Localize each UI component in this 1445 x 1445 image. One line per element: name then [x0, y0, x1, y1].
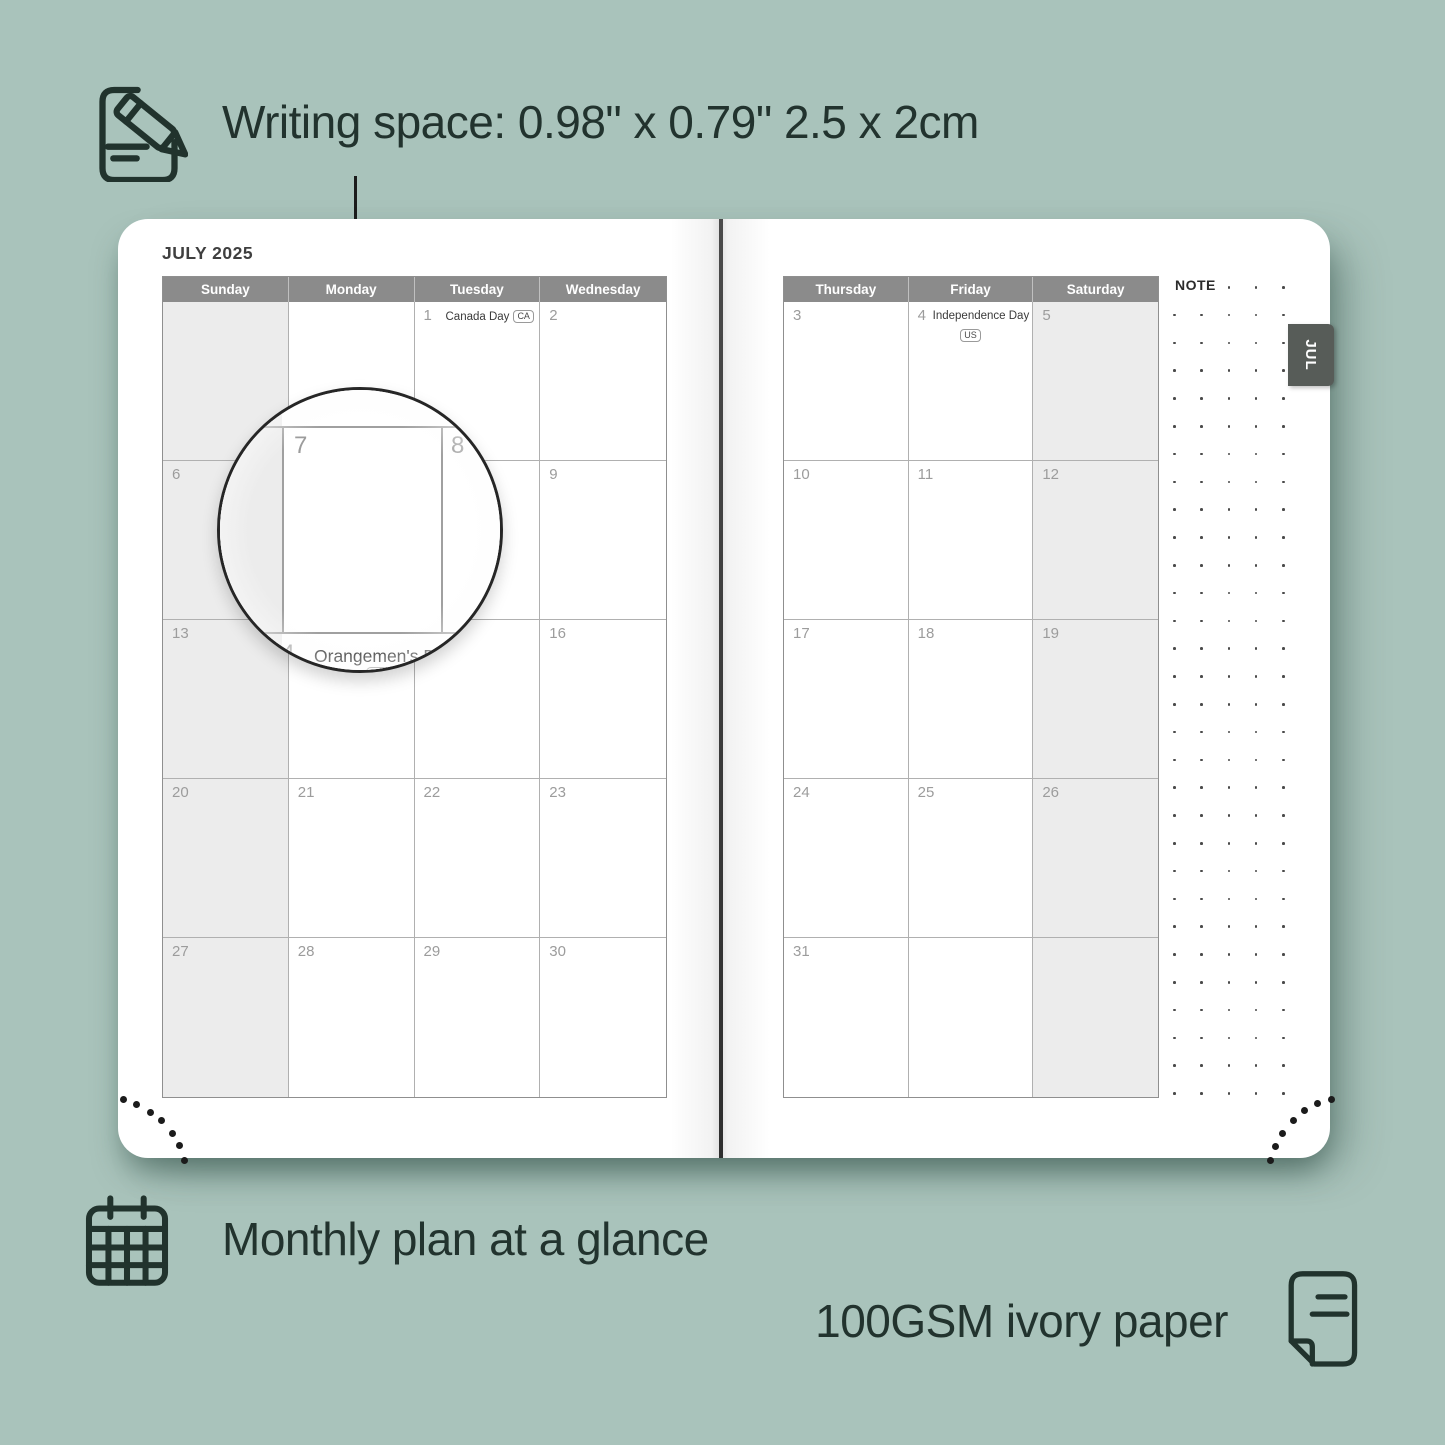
note-dot [1255, 564, 1258, 567]
note-dot [1200, 425, 1203, 428]
note-dot [1200, 786, 1203, 789]
month-title: JULY 2025 [162, 243, 253, 264]
note-dot [1200, 647, 1203, 650]
note-dot [1200, 981, 1203, 984]
calendar-cell: 22 [415, 779, 541, 938]
note-dot [1228, 731, 1231, 734]
note-dot [1255, 786, 1258, 789]
note-dot [1255, 842, 1258, 845]
note-dot [1228, 314, 1231, 317]
note-dot [1173, 536, 1176, 539]
monthly-plan-label: Monthly plan at a glance [222, 1212, 709, 1266]
magnified-weekend-column [220, 390, 282, 670]
corner-dot [169, 1130, 176, 1137]
note-dot [1173, 870, 1176, 873]
day-header: Monday [289, 277, 415, 302]
note-dot [1228, 842, 1231, 845]
note-label: NOTE [1175, 277, 1216, 293]
note-dot [1255, 425, 1258, 428]
note-dot [1228, 1064, 1231, 1067]
calendar-cell: 4Independence DayUS [909, 302, 1034, 461]
day-header: Tuesday [415, 277, 541, 302]
calendar-cell: 30 [540, 938, 666, 1097]
magnified-day-7: 7 [294, 432, 307, 460]
day-number: 16 [549, 625, 566, 642]
note-dot [1282, 286, 1285, 289]
note-dot [1282, 453, 1285, 456]
corner-dot [181, 1157, 188, 1164]
day-number: 21 [298, 784, 315, 801]
note-dot [1255, 369, 1258, 372]
note-dot [1282, 1092, 1285, 1095]
note-dot [1200, 814, 1203, 817]
note-dot [1282, 481, 1285, 484]
note-dot [1255, 481, 1258, 484]
note-dot [1255, 703, 1258, 706]
note-dot [1173, 564, 1176, 567]
day-number: 1 [424, 307, 432, 324]
day-number: 30 [549, 943, 566, 960]
note-dot [1228, 759, 1231, 762]
note-dot [1228, 481, 1231, 484]
day-number: 28 [298, 943, 315, 960]
note-dot [1255, 981, 1258, 984]
day-number: 2 [549, 307, 557, 324]
note-dot [1282, 536, 1285, 539]
note-dot [1282, 703, 1285, 706]
day-number: 4 [918, 307, 926, 324]
note-dot [1228, 786, 1231, 789]
note-dot [1200, 620, 1203, 623]
corner-dot [120, 1096, 127, 1103]
note-dot [1282, 508, 1285, 511]
note-dot [1228, 369, 1231, 372]
note-dot [1173, 703, 1176, 706]
note-dot [1255, 536, 1258, 539]
corner-dot [1267, 1157, 1274, 1164]
note-dot [1282, 925, 1285, 928]
calendar-cell: 31 [784, 938, 909, 1097]
note-dot [1282, 314, 1285, 317]
calendar-cell: 11 [909, 461, 1034, 620]
note-dot [1228, 870, 1231, 873]
corner-dot [1301, 1107, 1308, 1114]
paper-label: 100GSM ivory paper [815, 1294, 1228, 1348]
calendar-cell: 20 [163, 779, 289, 938]
note-dot [1200, 898, 1203, 901]
note-dot [1255, 1064, 1258, 1067]
day-number: 17 [793, 625, 810, 642]
note-dot [1228, 1037, 1231, 1040]
note-dot [1228, 397, 1231, 400]
note-dot [1200, 1009, 1203, 1012]
corner-dot [176, 1142, 183, 1149]
note-dot [1200, 481, 1203, 484]
note-dot [1228, 647, 1231, 650]
note-dot [1173, 592, 1176, 595]
note-dot [1228, 953, 1231, 956]
note-dot [1173, 898, 1176, 901]
note-dot [1173, 397, 1176, 400]
day-number: 12 [1042, 466, 1059, 483]
note-dot [1282, 953, 1285, 956]
note-dot [1228, 425, 1231, 428]
magnified-writing-space: 7 8 14 Orangemen's Day NL [220, 390, 500, 670]
note-dot [1255, 314, 1258, 317]
note-dot [1200, 870, 1203, 873]
month-tab-label: JUL [1280, 332, 1342, 378]
calendar-cell: 24 [784, 779, 909, 938]
note-dot [1228, 564, 1231, 567]
note-dot [1255, 453, 1258, 456]
day-header: Saturday [1033, 277, 1158, 302]
day-header: Thursday [784, 277, 909, 302]
day-number: 26 [1042, 784, 1059, 801]
note-dot [1173, 814, 1176, 817]
note-dot [1228, 453, 1231, 456]
corner-dot [1314, 1100, 1321, 1107]
note-dot [1173, 759, 1176, 762]
calendar-cell: 19 [1033, 620, 1158, 779]
note-dot [1255, 620, 1258, 623]
calendar-cell: 16 [540, 620, 666, 779]
planner-spread: JULY 2025 SundayMondayTuesdayWednesday1C… [118, 219, 1330, 1158]
note-dot [1173, 981, 1176, 984]
note-dot [1173, 481, 1176, 484]
note-dot [1173, 369, 1176, 372]
note-dot [1228, 620, 1231, 623]
note-dot [1282, 592, 1285, 595]
note-dot [1228, 342, 1231, 345]
note-dot [1282, 870, 1285, 873]
note-dot [1255, 898, 1258, 901]
note-dot [1173, 647, 1176, 650]
note-dot [1228, 286, 1231, 289]
note-dot [1228, 675, 1231, 678]
note-dot [1228, 981, 1231, 984]
calendar-cell [1033, 938, 1158, 1097]
note-dot [1173, 842, 1176, 845]
corner-dot [1290, 1117, 1297, 1124]
calendar-cell: 17 [784, 620, 909, 779]
calendar-cell: 2 [540, 302, 666, 461]
note-dot [1255, 647, 1258, 650]
note-dot [1255, 1037, 1258, 1040]
writing-space-label: Writing space: 0.98" x 0.79" 2.5 x 2cm [222, 95, 979, 149]
note-dot [1282, 786, 1285, 789]
day-number: 5 [1042, 307, 1050, 324]
note-dot [1200, 453, 1203, 456]
note-dot [1282, 397, 1285, 400]
calendar-grid-icon [76, 1190, 178, 1292]
magnified-day-8: 8 [451, 432, 464, 460]
note-dot [1255, 925, 1258, 928]
note-dot [1173, 1037, 1176, 1040]
note-dot [1282, 759, 1285, 762]
day-number: 10 [793, 466, 810, 483]
calendar-cell: 29 [415, 938, 541, 1097]
corner-dot [147, 1109, 154, 1116]
day-number: 19 [1042, 625, 1059, 642]
note-dot [1173, 508, 1176, 511]
corner-dot [1279, 1130, 1286, 1137]
note-dot [1173, 453, 1176, 456]
note-dot [1200, 1064, 1203, 1067]
note-dot [1173, 425, 1176, 428]
paper-sheet-icon [1272, 1264, 1368, 1370]
note-dot [1255, 731, 1258, 734]
calendar-cell: 18 [909, 620, 1034, 779]
note-dot [1255, 397, 1258, 400]
month-tab: JUL [1288, 324, 1334, 386]
note-dot [1173, 1064, 1176, 1067]
magnified-holiday-badge: NL [366, 667, 393, 670]
day-number: 11 [918, 466, 934, 483]
note-dot [1255, 1009, 1258, 1012]
day-header: Sunday [163, 277, 289, 302]
note-dot [1255, 286, 1258, 289]
product-image: Writing space: 0.98" x 0.79" 2.5 x 2cm J… [0, 0, 1445, 1445]
note-dot [1228, 1092, 1231, 1095]
day-number: 13 [172, 625, 189, 642]
holiday-label: Canada DayCA [446, 310, 534, 323]
note-dot [1200, 536, 1203, 539]
calendar-right-page: ThursdayFridaySaturday34Independence Day… [783, 276, 1159, 1098]
note-dot [1200, 369, 1203, 372]
note-dot [1200, 342, 1203, 345]
holiday-label: Independence Day [933, 310, 1030, 322]
day-number: 24 [793, 784, 810, 801]
note-dot [1200, 1092, 1203, 1095]
note-dot [1228, 536, 1231, 539]
magnified-day-14: 14 [268, 640, 295, 668]
note-dot [1255, 1092, 1258, 1095]
note-dot [1255, 508, 1258, 511]
note-dot [1255, 870, 1258, 873]
note-dot [1173, 1092, 1176, 1095]
note-dot [1200, 731, 1203, 734]
note-dot [1173, 1009, 1176, 1012]
calendar-cell: 25 [909, 779, 1034, 938]
note-dot [1200, 397, 1203, 400]
calendar-cell: 27 [163, 938, 289, 1097]
note-dot [1282, 1037, 1285, 1040]
note-dot [1173, 342, 1176, 345]
calendar-cell: 9 [540, 461, 666, 620]
note-dot [1200, 314, 1203, 317]
note-dot [1200, 1037, 1203, 1040]
corner-dot [1272, 1143, 1279, 1150]
day-number: 3 [793, 307, 801, 324]
corner-dot [158, 1117, 165, 1124]
calendar-cell: 5 [1033, 302, 1158, 461]
note-dot [1173, 953, 1176, 956]
note-dot [1255, 675, 1258, 678]
note-dot [1228, 592, 1231, 595]
calendar-cell: 3 [784, 302, 909, 461]
day-number: 20 [172, 784, 189, 801]
note-dot [1228, 898, 1231, 901]
calendar-cell: 26 [1033, 779, 1158, 938]
day-number: 18 [918, 625, 935, 642]
note-dot [1228, 703, 1231, 706]
note-dot [1282, 814, 1285, 817]
note-dot [1173, 675, 1176, 678]
note-dot [1200, 759, 1203, 762]
note-dot [1200, 508, 1203, 511]
note-dot [1282, 564, 1285, 567]
note-dot [1282, 675, 1285, 678]
day-number: 22 [424, 784, 441, 801]
calendar-cell: 28 [289, 938, 415, 1097]
note-dot [1255, 759, 1258, 762]
calendar-cell: 21 [289, 779, 415, 938]
note-dot [1200, 703, 1203, 706]
note-dot [1200, 564, 1203, 567]
day-number: 23 [549, 784, 566, 801]
day-number: 27 [172, 943, 189, 960]
calendar-cell [909, 938, 1034, 1097]
note-dot [1282, 981, 1285, 984]
note-dot [1255, 342, 1258, 345]
note-dot [1228, 508, 1231, 511]
calendar-cell: 10 [784, 461, 909, 620]
magnifier-circle: 7 8 14 Orangemen's Day NL [217, 387, 503, 673]
note-dot [1255, 814, 1258, 817]
note-dot [1228, 1009, 1231, 1012]
day-number: 25 [918, 784, 935, 801]
calendar-cell: 23 [540, 779, 666, 938]
note-dot [1200, 953, 1203, 956]
note-dot [1200, 842, 1203, 845]
note-dot [1282, 731, 1285, 734]
note-dot [1173, 620, 1176, 623]
note-dot [1255, 592, 1258, 595]
day-number: 9 [549, 466, 557, 483]
day-header: Wednesday [540, 277, 666, 302]
note-dot [1255, 953, 1258, 956]
day-number: 6 [172, 466, 180, 483]
note-dot [1228, 814, 1231, 817]
pencil-note-icon [80, 70, 188, 182]
note-dot [1282, 425, 1285, 428]
note-dot [1200, 592, 1203, 595]
note-dot [1200, 925, 1203, 928]
note-dot [1282, 842, 1285, 845]
holiday-region-badge: CA [513, 310, 534, 323]
corner-dot [133, 1101, 140, 1108]
note-dot [1282, 1064, 1285, 1067]
note-dot [1200, 675, 1203, 678]
note-dot [1173, 786, 1176, 789]
calendar-cell: 12 [1033, 461, 1158, 620]
day-number: 31 [793, 943, 810, 960]
note-dot [1173, 314, 1176, 317]
holiday-region-badge: US [960, 329, 981, 342]
day-number: 29 [424, 943, 441, 960]
corner-dot [1328, 1096, 1335, 1103]
note-dot [1282, 1009, 1285, 1012]
note-dot [1228, 925, 1231, 928]
note-dot [1173, 925, 1176, 928]
magnified-holiday: Orangemen's Day [314, 646, 455, 667]
note-dot [1282, 647, 1285, 650]
note-dot [1173, 731, 1176, 734]
note-dot [1282, 898, 1285, 901]
note-dot [1282, 620, 1285, 623]
day-header: Friday [909, 277, 1034, 302]
spine [719, 219, 723, 1158]
